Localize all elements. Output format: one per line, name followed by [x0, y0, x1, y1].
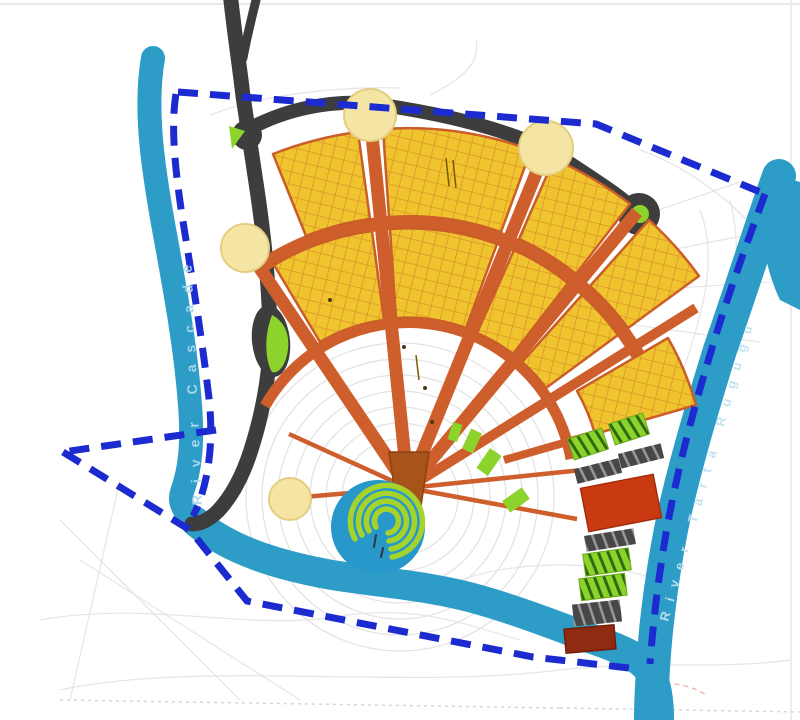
node [221, 224, 269, 272]
dark-red-parcel [564, 625, 616, 653]
map-canvas: River Cascade River Tarta Rugugu [0, 0, 800, 720]
node [519, 121, 573, 175]
node [344, 89, 396, 141]
master-plan-map: River Cascade River Tarta Rugugu [0, 0, 800, 720]
node [269, 478, 311, 520]
central-lake-feature [331, 480, 425, 574]
